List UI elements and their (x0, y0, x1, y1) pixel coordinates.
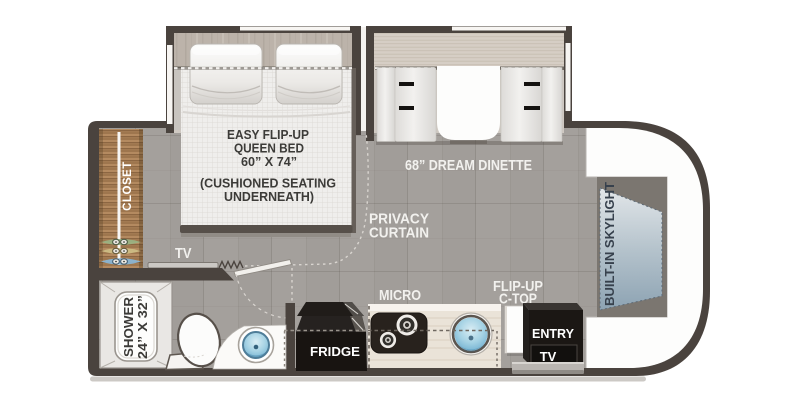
svg-text:FRIDGE: FRIDGE (310, 344, 360, 359)
svg-text:UNDERNEATH): UNDERNEATH) (224, 189, 314, 204)
svg-text:TV: TV (175, 245, 192, 262)
svg-text:60” X 74”: 60” X 74” (241, 154, 297, 169)
svg-text:TV: TV (540, 349, 557, 364)
svg-text:SHOWER: SHOWER (121, 296, 136, 357)
svg-text:24” X 32”: 24” X 32” (135, 295, 150, 359)
svg-text:68” DREAM DINETTE: 68” DREAM DINETTE (405, 157, 532, 174)
svg-text:ENTRY: ENTRY (532, 326, 574, 341)
svg-text:MICRO: MICRO (379, 287, 421, 304)
svg-text:CURTAIN: CURTAIN (369, 225, 429, 242)
svg-text:CLOSET: CLOSET (122, 161, 134, 211)
svg-text:BUILT-IN SKYLIGHT: BUILT-IN SKYLIGHT (603, 182, 617, 306)
